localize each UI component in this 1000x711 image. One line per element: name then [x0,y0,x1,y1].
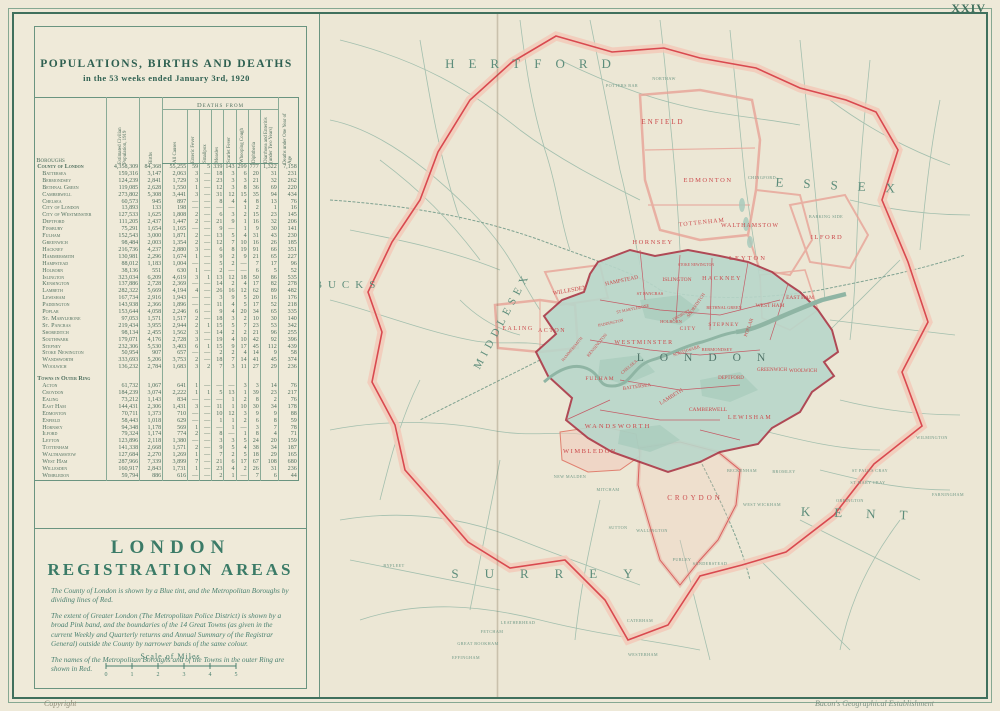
place-label: NEW MALDEN [554,474,586,479]
place-label: BYFLEET [383,563,404,568]
legend-title-line2: REGISTRATION AREAS [35,560,306,580]
map-label-deptford: DEPTFORD [718,376,744,381]
county-label-surrey: SURREY [451,566,658,581]
scale-label: Scale of Miles [35,652,306,661]
atlas-page: { "page": { "folio": "XXIV", "copyright"… [0,0,1000,711]
map-label-hackney: HACKNEY [702,276,742,282]
london-label: LONDON [637,352,782,364]
legend-title-line1: LONDON [35,537,306,559]
map-label-city: CITY [680,326,697,332]
place-label: MITCHAM [596,487,619,492]
map-label-acton: ACTON [538,328,566,334]
copyright-note: Copyright [44,699,76,708]
place-label: BARKING SIDE [809,214,843,219]
place-label: ORPINGTON [836,498,864,503]
place-label: SUTTON [609,525,628,530]
place-label: ST MARY CRAY [850,480,885,485]
map-label-stepney: STEPNEY [708,322,739,328]
legend-title: LONDON REGISTRATION AREAS [35,537,306,580]
page-number: XXIV [951,1,986,16]
map-label-bethnal-green: BETHNAL GREEN [706,305,741,310]
county-label-bucks: BUCKS [315,279,382,291]
place-label: BECKENHAM [727,468,757,473]
place-label: WESTERHAM [628,652,658,657]
scale-tick: 5 [234,672,237,677]
map-label-islington: ISLINGTON [662,277,691,283]
map-label-walthamstow: WALTHAMSTOW [721,223,779,229]
map-label-camberwell: CAMBERWELL [689,407,728,413]
map-label-croydon: CROYDON [667,494,723,502]
place-label: BROMLEY [772,469,795,474]
map-label-greenwich: GREENWICH [757,368,787,373]
place-label: WILMINGTON [916,435,948,440]
scale-tick: 4 [208,672,211,677]
place-label: FARNINGHAM [932,492,964,497]
publisher-imprint: Bacon's Geographical Establishment [815,699,934,708]
legend-paragraph-1: The County of London is shown by a Blue … [51,586,290,605]
place-label: EFFINGHAM [452,655,480,660]
map-label-ilford: ILFORD [811,234,843,241]
legend-box: LONDON REGISTRATION AREAS The County of … [34,528,307,689]
map-label-stoke-newington: STOKE NEWINGTON [678,263,715,267]
place-label: CATERHAM [627,618,653,623]
map-label-ealing: EALING [502,326,533,332]
place-label: POTTERS BAR [606,83,638,88]
map-label-wandsworth: WANDSWORTH [585,423,652,430]
map-label-hornsey: HORNSEY [632,239,673,246]
scale-of-miles: Scale of Miles 0 1 2 3 4 5 [35,652,306,682]
scale-bar: 0 1 2 3 4 5 [91,661,251,677]
place-label: GREAT BOOKHAM [457,641,498,646]
place-label: FETCHAM [481,629,504,634]
map-label-fulham: FULHAM [585,376,614,382]
map-label-east-ham: EAST HAM [786,295,814,301]
place-label: ST PAULS CRAY [852,468,888,473]
scale-tick: 3 [182,672,185,677]
map-label-woolwich: WOOLWICH [789,369,817,374]
map-label-leyton: LEYTON [729,255,767,262]
place-label: CHINGFORD [748,175,776,180]
place-label: WEST WICKHAM [743,502,781,507]
map-label-westminster: WESTMINSTER [614,340,673,346]
map-label-wimbledon: WIMBLEDON [563,448,617,455]
place-label: SANDERSTEAD [693,561,728,566]
map-label-holborn: HOLBORN [660,319,683,324]
map-label-west-ham: WEST HAM [755,303,784,309]
map-label-bermondsey: BERMONDSEY [701,347,733,352]
map-label-lewisham: LEWISHAM [728,415,772,421]
legend-paragraph-2: The extent of Greater London (The Metrop… [51,611,290,649]
map-label-st-pancras: ST PANCRAS [637,291,664,296]
map-label-edmonton: EDMONTON [683,177,732,184]
place-label: LEATHERHEAD [501,620,536,625]
statistics-panel: POPULATIONS, BIRTHS AND DEATHS in the 53… [14,14,320,697]
map-label-enfield: ENFIELD [641,118,684,126]
scale-tick: 0 [104,672,107,677]
place-label: NORTHAW [652,76,676,81]
county-label-hertford: HERTFORD [445,56,625,71]
place-label: PURLEY [673,557,692,562]
scale-tick: 2 [156,672,159,677]
place-label: WALLINGTON [636,528,668,533]
scale-tick: 1 [130,672,133,677]
